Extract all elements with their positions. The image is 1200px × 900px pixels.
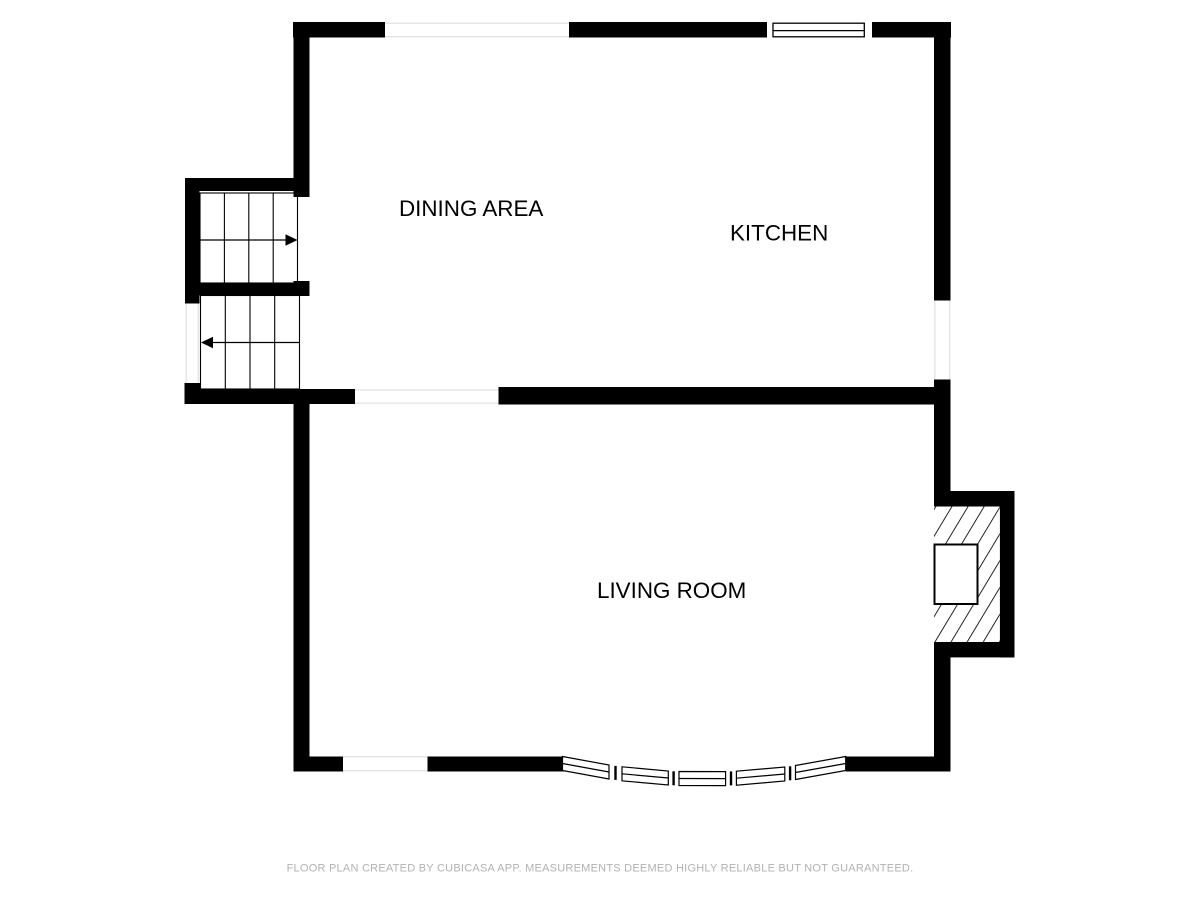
svg-text:FLOOR PLAN CREATED BY CUBICASA: FLOOR PLAN CREATED BY CUBICASA APP. MEAS… xyxy=(287,862,914,874)
svg-text:KITCHEN: KITCHEN xyxy=(730,221,828,246)
svg-text:DINING AREA: DINING AREA xyxy=(399,196,543,221)
svg-text:LIVING ROOM: LIVING ROOM xyxy=(597,578,746,603)
